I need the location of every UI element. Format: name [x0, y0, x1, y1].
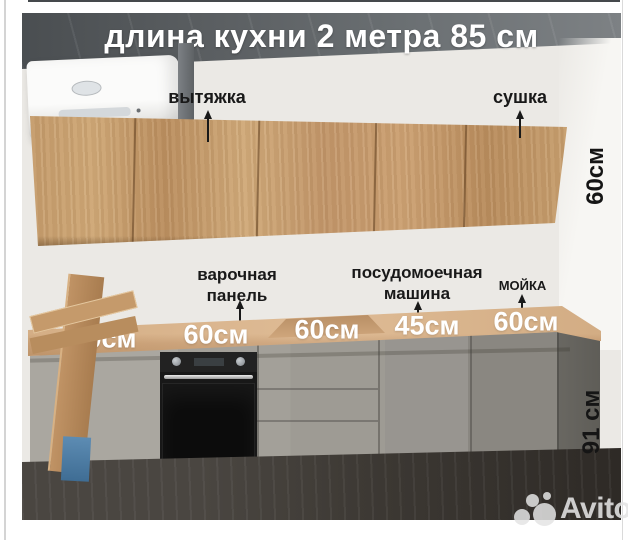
kitchen-photo: длина кухни 2 метра 85 см вытяжка сушка …: [22, 13, 621, 520]
dishwasher-label: посудомоечная машина: [332, 262, 502, 304]
cabinet-door-seam: [463, 116, 468, 246]
oven-handle: [164, 375, 253, 379]
frame-left-line: [4, 0, 6, 540]
oven-knob-right: [236, 357, 245, 366]
kitchen-length-title: длина кухни 2 метра 85 см: [22, 18, 621, 55]
sink-label: МОЙКА: [490, 275, 555, 296]
cabinet-door-seam: [256, 116, 261, 246]
counter-width-label-3: 60см: [294, 315, 359, 346]
avito-watermark-text: Avito: [560, 492, 628, 526]
ac-logo-badge: [71, 80, 102, 96]
hood-vent-duct: [178, 43, 194, 124]
avito-logo-circle: [514, 509, 530, 525]
avito-watermark: Avito: [512, 492, 628, 532]
built-in-oven: [160, 352, 257, 467]
cabinet-door-seam: [373, 116, 378, 246]
avito-logo-circle: [543, 492, 551, 500]
dryer-arrow: [514, 110, 526, 138]
oven-display: [194, 358, 224, 366]
hob-label-line1: варочная: [197, 265, 277, 284]
oven-door-glass: [162, 383, 255, 464]
counter-width-label-2: 60см: [183, 320, 248, 351]
dryer-label: сушка: [460, 87, 580, 108]
frame-right-line: [622, 0, 623, 540]
avito-logo-circle: [533, 503, 556, 526]
base-cabinet-height-label: 91 см: [578, 382, 604, 462]
cabinet-door-seam: [132, 116, 137, 246]
dishwasher-label-line1: посудомоечная: [351, 263, 482, 282]
upper-cabinet-height-label: 60см: [582, 136, 608, 216]
ac-indicator-dot: [136, 108, 140, 112]
hood-arrow: [202, 110, 214, 142]
frame-top-line: [28, 0, 620, 2]
oven-knob-left: [172, 357, 181, 366]
drawer-seam: [257, 388, 378, 390]
upper-cabinets: [30, 116, 567, 246]
blue-object: [61, 436, 91, 481]
drawer-seam: [257, 420, 378, 422]
hood-label: вытяжка: [142, 87, 272, 108]
oven-control-panel: [160, 352, 257, 372]
